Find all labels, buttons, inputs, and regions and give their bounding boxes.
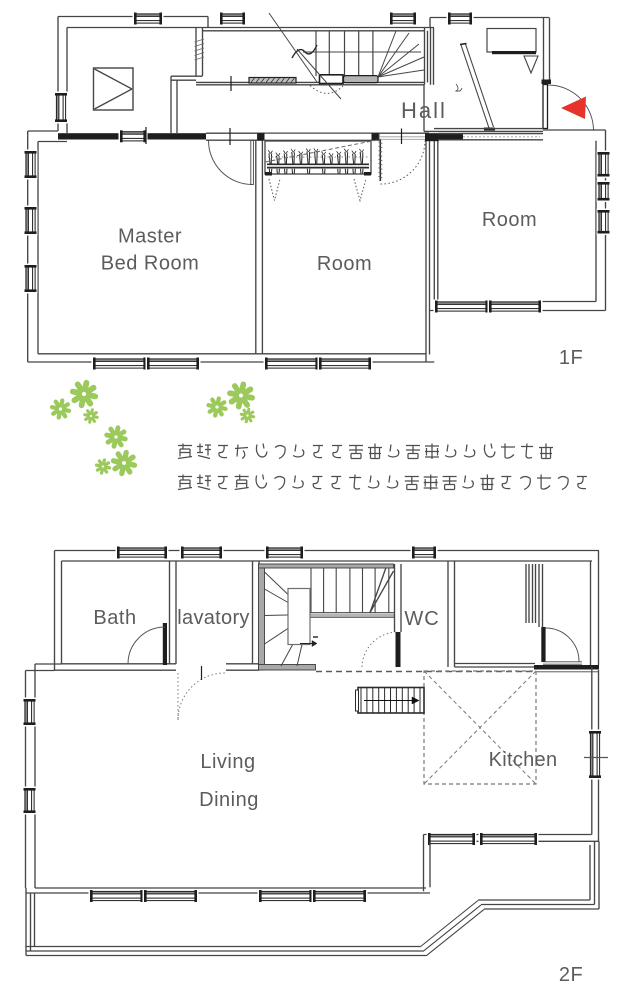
svg-text:Hall: Hall bbox=[401, 98, 447, 123]
svg-text:Master: Master bbox=[118, 226, 182, 248]
svg-text:Living: Living bbox=[200, 751, 255, 773]
svg-text:2F: 2F bbox=[559, 964, 583, 986]
svg-text:Room: Room bbox=[482, 209, 537, 231]
svg-text:Kitchen: Kitchen bbox=[489, 749, 558, 771]
svg-text:lavatory: lavatory bbox=[177, 607, 249, 629]
svg-text:Room: Room bbox=[317, 253, 372, 275]
svg-text:Bed Room: Bed Room bbox=[101, 253, 200, 275]
svg-text:WC: WC bbox=[404, 608, 439, 630]
svg-text:Dining: Dining bbox=[199, 789, 259, 811]
svg-text:1F: 1F bbox=[559, 347, 583, 369]
svg-text:Bath: Bath bbox=[93, 607, 136, 629]
